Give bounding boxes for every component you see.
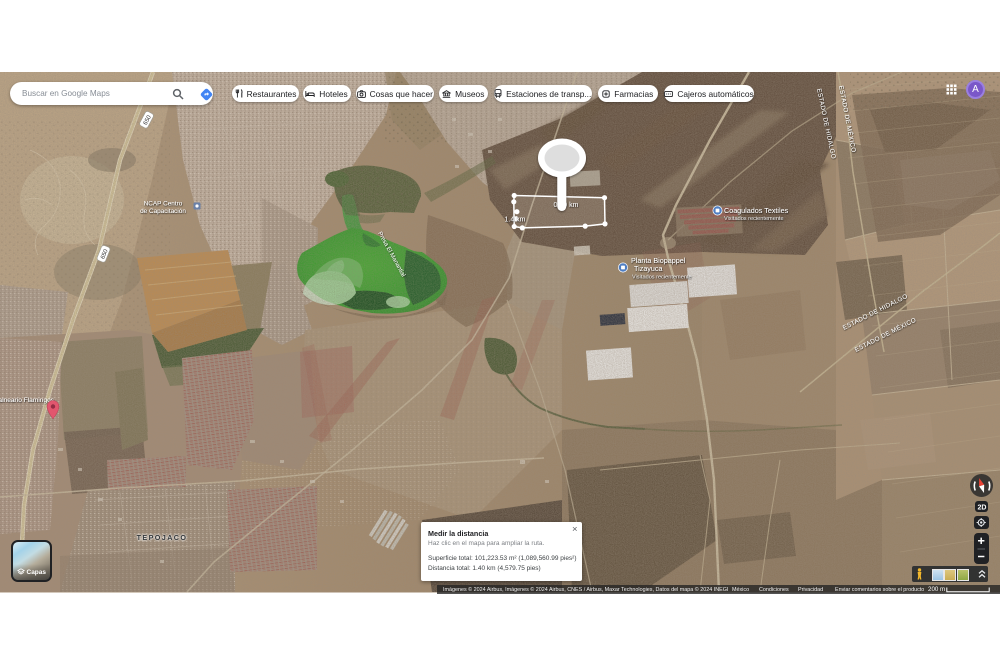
svg-text:Balneario Flamingos: Balneario Flamingos [0,397,55,404]
svg-text:Tizayuca: Tizayuca [634,264,663,273]
svg-text:TEPOJACO: TEPOJACO [137,533,188,542]
svg-text:Visitados recientemente: Visitados recientemente [632,275,692,281]
svg-text:2D: 2D [977,504,986,511]
svg-text:Coagulados Textiles: Coagulados Textiles [724,206,789,215]
svg-text:NCAP Centro: NCAP Centro [144,201,183,208]
svg-text:Visitados recientemente: Visitados recientemente [724,216,784,222]
svg-text:de Capacitación: de Capacitación [140,208,186,215]
svg-text:1.4 km: 1.4 km [504,217,525,224]
